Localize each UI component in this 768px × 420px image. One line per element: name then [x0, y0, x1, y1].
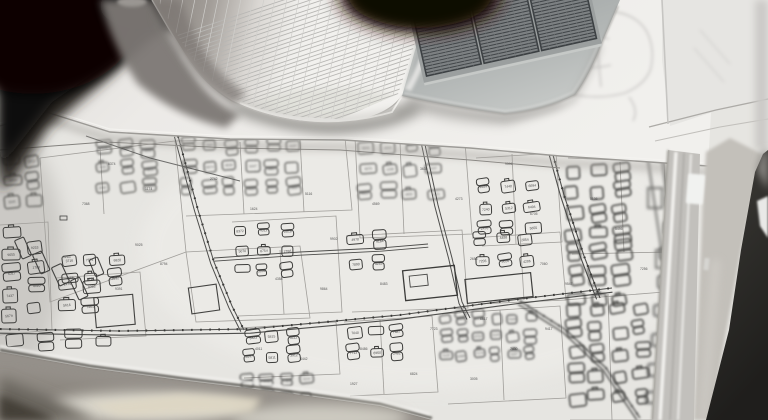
svg-text:2786: 2786 — [284, 249, 292, 254]
svg-text:9253: 9253 — [31, 245, 39, 250]
svg-text:1263: 1263 — [63, 255, 71, 259]
svg-text:2064: 2064 — [123, 147, 131, 152]
svg-text:4310: 4310 — [33, 284, 41, 289]
svg-text:8754: 8754 — [260, 249, 268, 254]
svg-text:5312: 5312 — [505, 206, 513, 211]
svg-text:1555: 1555 — [66, 276, 74, 281]
svg-text:3532: 3532 — [111, 276, 119, 281]
svg-text:5136: 5136 — [590, 197, 598, 201]
svg-text:7440: 7440 — [504, 184, 512, 189]
svg-text:4442: 4442 — [300, 357, 308, 361]
svg-text:6824: 6824 — [410, 372, 418, 376]
svg-text:6317: 6317 — [8, 271, 16, 276]
svg-text:5070: 5070 — [238, 249, 246, 254]
svg-text:3635: 3635 — [420, 167, 428, 171]
svg-text:9547: 9547 — [565, 282, 573, 286]
svg-text:1788: 1788 — [32, 265, 40, 270]
svg-text:4206: 4206 — [523, 259, 531, 264]
svg-text:5214: 5214 — [87, 277, 95, 282]
svg-text:9864: 9864 — [320, 287, 328, 291]
svg-text:5616: 5616 — [63, 303, 71, 308]
svg-text:3281: 3281 — [182, 186, 190, 191]
svg-text:1174: 1174 — [145, 187, 152, 191]
svg-text:5561: 5561 — [124, 166, 132, 171]
svg-text:7060: 7060 — [540, 262, 548, 266]
svg-text:4003: 4003 — [361, 191, 369, 196]
svg-text:9928: 9928 — [113, 258, 121, 263]
svg-text:5655: 5655 — [530, 226, 538, 231]
svg-text:3928: 3928 — [459, 334, 467, 339]
svg-text:6636: 6636 — [225, 163, 233, 168]
svg-text:3134: 3134 — [492, 333, 500, 338]
svg-text:2482: 2482 — [393, 351, 401, 356]
svg-text:4000: 4000 — [247, 187, 255, 192]
svg-text:8323: 8323 — [249, 336, 257, 341]
svg-text:8753: 8753 — [474, 334, 482, 339]
svg-text:9902: 9902 — [330, 237, 338, 241]
svg-text:8386: 8386 — [88, 285, 96, 290]
svg-text:2470: 2470 — [481, 226, 489, 231]
svg-text:4488: 4488 — [499, 235, 507, 240]
svg-text:5337: 5337 — [511, 352, 519, 357]
svg-text:9466: 9466 — [225, 185, 233, 190]
svg-text:7437: 7437 — [6, 294, 14, 299]
svg-text:6694: 6694 — [528, 183, 536, 188]
svg-text:5815: 5815 — [268, 334, 276, 339]
svg-text:4283: 4283 — [375, 261, 383, 266]
svg-text:6447: 6447 — [249, 164, 257, 169]
svg-text:9055: 9055 — [7, 252, 15, 257]
svg-text:5214: 5214 — [303, 377, 311, 382]
svg-text:1791: 1791 — [526, 352, 534, 357]
svg-text:7256: 7256 — [640, 267, 648, 271]
svg-text:5116: 5116 — [305, 192, 312, 196]
svg-text:2601: 2601 — [290, 185, 298, 190]
svg-text:3912: 3912 — [290, 353, 298, 358]
svg-text:1927: 1927 — [350, 382, 358, 386]
svg-text:7549: 7549 — [508, 317, 516, 322]
svg-text:1624: 1624 — [250, 207, 258, 211]
svg-text:4311: 4311 — [260, 228, 268, 233]
svg-text:6494: 6494 — [528, 205, 536, 210]
svg-text:4358: 4358 — [275, 277, 283, 281]
svg-text:2647: 2647 — [245, 354, 253, 359]
svg-text:4569: 4569 — [372, 202, 380, 206]
svg-text:7890: 7890 — [352, 262, 360, 267]
svg-text:4822: 4822 — [146, 167, 154, 172]
svg-text:9025: 9025 — [135, 243, 143, 247]
svg-text:7405: 7405 — [99, 165, 107, 170]
svg-text:6705: 6705 — [530, 212, 538, 216]
svg-text:7240: 7240 — [482, 207, 490, 212]
svg-text:6341: 6341 — [206, 186, 214, 191]
svg-text:5495: 5495 — [615, 227, 623, 231]
svg-text:5237: 5237 — [429, 166, 437, 171]
svg-text:3945: 3945 — [8, 200, 16, 205]
svg-text:6960: 6960 — [373, 351, 381, 356]
svg-text:1976: 1976 — [29, 180, 37, 185]
svg-text:9284: 9284 — [479, 184, 487, 189]
svg-text:6974: 6974 — [206, 165, 214, 170]
svg-text:8794: 8794 — [160, 262, 168, 266]
svg-text:5306: 5306 — [457, 354, 465, 359]
svg-text:9632: 9632 — [405, 192, 413, 197]
svg-text:6374: 6374 — [108, 162, 116, 166]
svg-text:7174: 7174 — [476, 351, 484, 356]
svg-text:3716: 3716 — [66, 259, 74, 264]
svg-text:4372: 4372 — [432, 192, 440, 197]
svg-text:7040: 7040 — [351, 331, 359, 336]
svg-text:3081: 3081 — [268, 167, 276, 172]
svg-text:9164: 9164 — [376, 239, 384, 244]
svg-text:3096: 3096 — [258, 269, 266, 274]
svg-text:9492: 9492 — [268, 185, 276, 190]
svg-text:4273: 4273 — [455, 197, 463, 201]
svg-text:8483: 8483 — [380, 282, 388, 286]
svg-text:7368: 7368 — [82, 202, 90, 206]
svg-text:7461: 7461 — [86, 305, 94, 310]
svg-text:7430: 7430 — [510, 347, 518, 351]
svg-text:8372: 8372 — [236, 229, 244, 234]
svg-text:6617: 6617 — [480, 317, 488, 321]
svg-text:5679: 5679 — [5, 314, 13, 319]
svg-text:9417: 9417 — [545, 327, 553, 331]
svg-text:2742: 2742 — [210, 177, 218, 181]
svg-text:7362: 7362 — [283, 379, 291, 384]
svg-text:3056: 3056 — [99, 186, 107, 191]
svg-text:2656: 2656 — [470, 257, 478, 261]
svg-text:1457: 1457 — [186, 166, 194, 171]
svg-text:9506: 9506 — [505, 162, 513, 166]
svg-text:6140: 6140 — [100, 146, 108, 151]
svg-text:3512: 3512 — [290, 335, 298, 340]
svg-text:2099: 2099 — [457, 317, 465, 322]
svg-text:7723: 7723 — [430, 327, 438, 331]
svg-text:5811: 5811 — [268, 355, 276, 360]
svg-text:8070: 8070 — [364, 166, 372, 171]
svg-text:5132: 5132 — [442, 353, 450, 358]
svg-text:2016: 2016 — [284, 229, 292, 234]
svg-text:8486: 8486 — [360, 347, 368, 351]
svg-text:2854: 2854 — [521, 238, 529, 243]
svg-text:4011: 4011 — [255, 347, 262, 351]
svg-text:4970: 4970 — [351, 237, 359, 242]
svg-text:1296: 1296 — [386, 167, 394, 172]
svg-text:3026: 3026 — [501, 259, 509, 264]
svg-text:3430: 3430 — [262, 379, 270, 384]
svg-text:2013: 2013 — [28, 159, 36, 164]
svg-text:7713: 7713 — [349, 351, 357, 356]
svg-text:7203: 7203 — [479, 259, 487, 264]
svg-text:6685: 6685 — [144, 148, 152, 153]
svg-text:3005: 3005 — [470, 377, 478, 381]
svg-text:7687: 7687 — [393, 330, 401, 335]
svg-text:7574: 7574 — [86, 258, 94, 263]
svg-text:9391: 9391 — [115, 287, 123, 291]
